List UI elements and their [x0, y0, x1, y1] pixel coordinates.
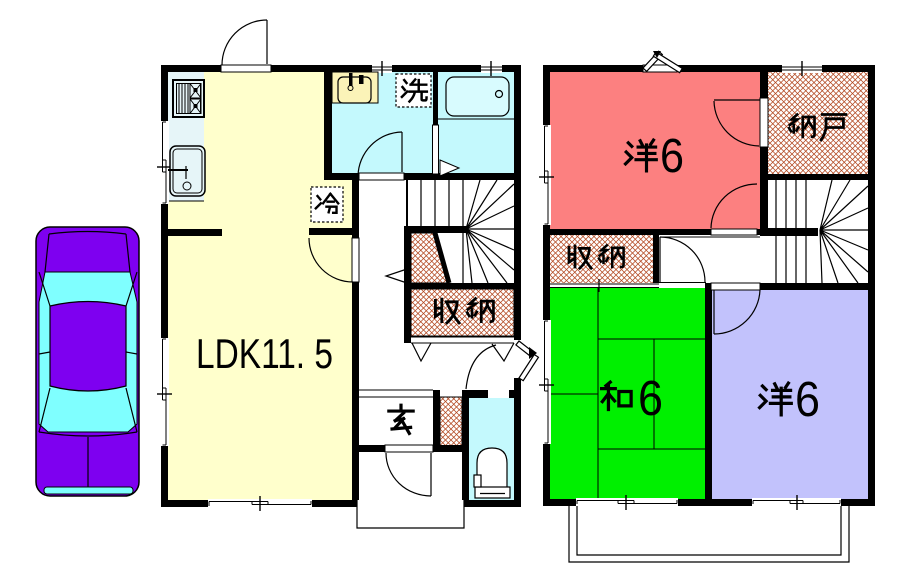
- svg-text:6: 6: [795, 373, 820, 427]
- svg-text:6: 6: [660, 130, 684, 183]
- svg-text:6: 6: [638, 372, 663, 426]
- svg-text:LDK11. 5: LDK11. 5: [196, 330, 333, 377]
